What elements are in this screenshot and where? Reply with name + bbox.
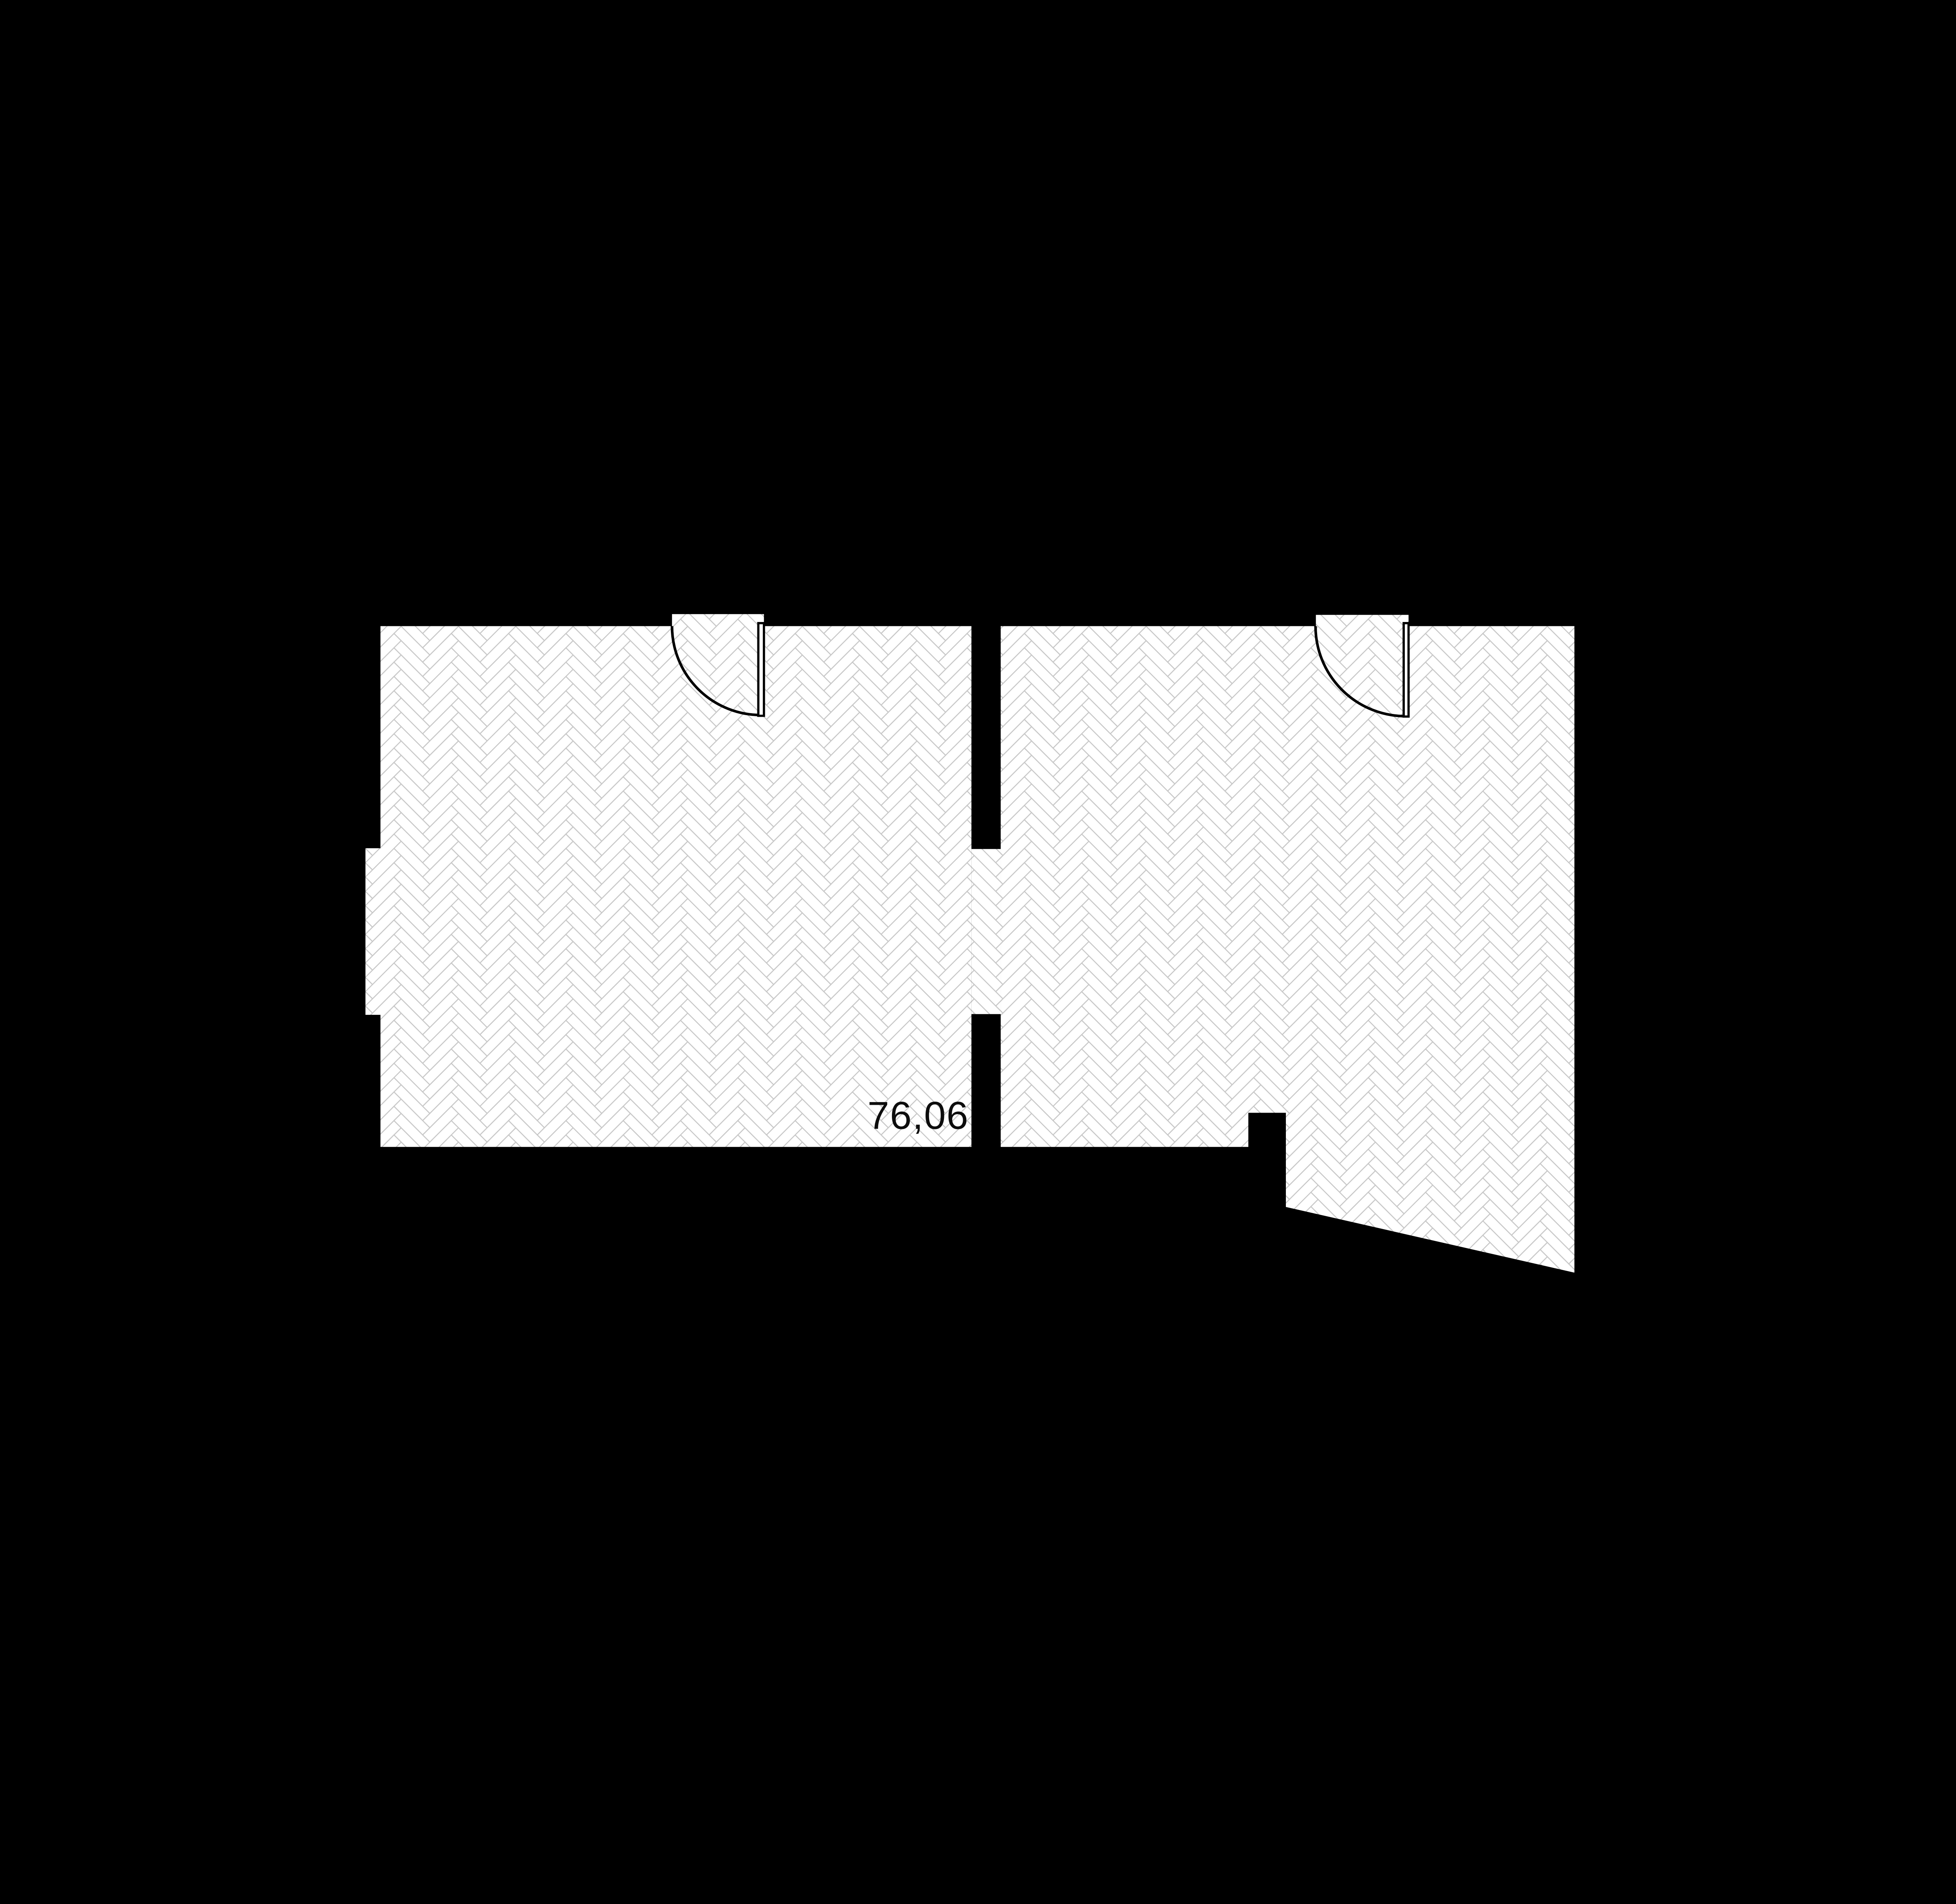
right-door-leaf bbox=[1404, 623, 1408, 717]
floor-plan: 76,06 bbox=[0, 0, 1956, 1904]
right-door-recess bbox=[1316, 615, 1409, 627]
passage-floor bbox=[971, 849, 1001, 1014]
left-door-leaf bbox=[758, 623, 764, 716]
left-door-recess bbox=[672, 614, 764, 627]
floor-plan-svg: 76,06 bbox=[0, 0, 1956, 1904]
area-label: 76,06 bbox=[868, 1094, 969, 1138]
left-room-floor bbox=[365, 626, 971, 1147]
